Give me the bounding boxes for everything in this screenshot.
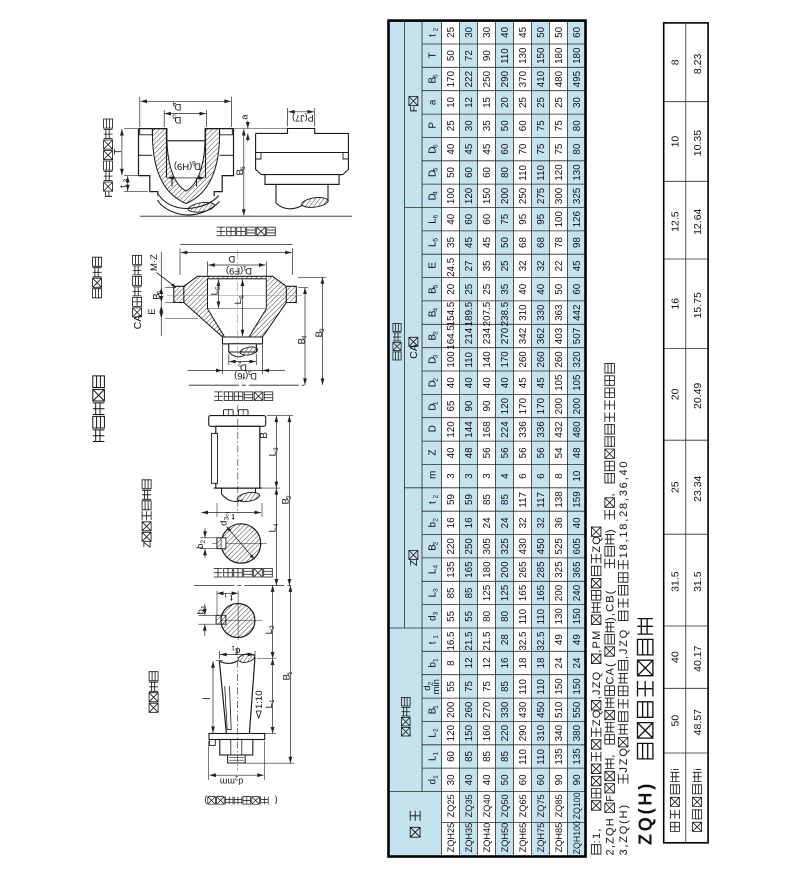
svg-text:18: 18 <box>536 657 547 668</box>
svg-text:,: , <box>605 492 617 496</box>
svg-text:,JZQ: ,JZQ <box>618 628 630 659</box>
svg-text:E: E <box>427 262 438 269</box>
svg-text:12: 12 <box>464 658 475 669</box>
svg-text:E: E <box>147 308 158 314</box>
svg-text:75: 75 <box>464 680 475 691</box>
svg-text:25: 25 <box>518 96 529 107</box>
svg-text:24: 24 <box>572 657 583 668</box>
svg-text:170: 170 <box>446 70 457 87</box>
svg-text:5: 5 <box>433 168 440 172</box>
svg-text:480: 480 <box>554 70 565 87</box>
svg-text:1: 1 <box>433 752 440 756</box>
svg-text:85: 85 <box>500 680 511 691</box>
svg-text:60: 60 <box>572 26 583 37</box>
svg-text:525: 525 <box>554 538 565 555</box>
svg-text:90: 90 <box>482 400 493 411</box>
svg-text:10: 10 <box>446 96 457 107</box>
svg-text:30: 30 <box>482 26 493 37</box>
svg-text:5: 5 <box>433 284 440 288</box>
svg-text:1: 1 <box>231 644 235 651</box>
svg-text:45: 45 <box>536 377 547 388</box>
svg-text:1: 1 <box>433 401 440 405</box>
svg-text:200: 200 <box>500 561 511 578</box>
svg-text:432: 432 <box>554 421 565 437</box>
svg-text:3: 3 <box>273 447 280 451</box>
svg-text:70: 70 <box>518 143 529 154</box>
svg-text:75: 75 <box>554 120 565 131</box>
svg-text:4: 4 <box>433 308 440 312</box>
svg-text:,JZQ: ,JZQ <box>591 671 603 700</box>
svg-text:330: 330 <box>536 304 547 321</box>
svg-text:40: 40 <box>670 651 682 663</box>
svg-text:40: 40 <box>446 143 457 154</box>
svg-text:2: 2 <box>433 728 440 732</box>
svg-text:,PM: ,PM <box>591 630 603 653</box>
svg-text:138: 138 <box>554 491 565 508</box>
svg-text:40: 40 <box>500 26 511 37</box>
svg-text:45: 45 <box>518 26 529 37</box>
svg-text:ZQH75: ZQH75 <box>536 823 546 853</box>
svg-text:40: 40 <box>446 447 457 458</box>
svg-text:340: 340 <box>554 724 565 741</box>
svg-text:D: D <box>427 425 438 432</box>
svg-text:ZQH40: ZQH40 <box>482 823 492 853</box>
svg-text:1: 1 <box>223 591 227 598</box>
svg-text:12: 12 <box>464 97 475 108</box>
svg-text:8: 8 <box>670 59 682 65</box>
svg-text:85: 85 <box>446 587 457 598</box>
svg-text:a: a <box>427 99 438 105</box>
svg-text:110: 110 <box>518 165 529 181</box>
svg-text:60: 60 <box>572 283 583 294</box>
svg-text:Z: Z <box>408 559 420 566</box>
svg-text:18,18,28,36,40: 18,18,28,36,40 <box>618 460 630 559</box>
svg-text:50: 50 <box>500 120 511 131</box>
svg-text:28: 28 <box>500 634 511 645</box>
svg-text:55: 55 <box>446 680 457 691</box>
svg-text:36: 36 <box>554 517 565 528</box>
svg-text:20: 20 <box>446 283 457 294</box>
svg-text:3: 3 <box>433 588 440 592</box>
svg-text:180: 180 <box>572 47 583 64</box>
svg-text:3: 3 <box>433 331 440 335</box>
svg-text:1: 1 <box>201 605 208 609</box>
svg-text:260: 260 <box>518 351 529 368</box>
svg-text:159: 159 <box>572 491 583 507</box>
svg-text:15: 15 <box>482 96 493 107</box>
svg-text:480: 480 <box>572 421 583 438</box>
svg-text:40: 40 <box>446 377 457 388</box>
svg-text:200: 200 <box>500 187 511 204</box>
svg-text:605: 605 <box>572 538 583 555</box>
svg-text:F: F <box>408 106 420 112</box>
svg-text:3: 3 <box>433 611 440 615</box>
svg-text:80: 80 <box>500 610 511 621</box>
svg-text:285: 285 <box>536 561 547 578</box>
svg-text:100: 100 <box>446 351 457 368</box>
svg-text:ZQH85: ZQH85 <box>554 823 564 853</box>
svg-text:238.5: 238.5 <box>500 301 511 326</box>
svg-text:24.5: 24.5 <box>446 257 457 277</box>
svg-text:200: 200 <box>554 584 565 601</box>
svg-text:ZQ40: ZQ40 <box>482 794 492 817</box>
svg-text:117: 117 <box>536 492 547 508</box>
svg-text:l: l <box>202 698 213 700</box>
svg-text:23.34: 23.34 <box>692 475 704 501</box>
svg-text:40: 40 <box>446 213 457 224</box>
svg-text:55: 55 <box>446 610 457 621</box>
svg-text:220: 220 <box>500 724 511 741</box>
svg-text:78: 78 <box>554 237 565 248</box>
svg-text:t: t <box>230 592 233 603</box>
svg-text:21.5: 21.5 <box>464 631 475 651</box>
svg-text:325: 325 <box>554 561 565 578</box>
svg-text:85: 85 <box>464 587 475 598</box>
svg-text:D: D <box>228 253 235 264</box>
svg-text:150: 150 <box>482 187 493 204</box>
svg-text:ZQ85: ZQ85 <box>554 794 564 817</box>
svg-text:16: 16 <box>500 657 511 668</box>
svg-text:16: 16 <box>670 298 682 310</box>
svg-text:50: 50 <box>446 166 457 177</box>
svg-text:220: 220 <box>446 538 457 555</box>
svg-text:2: 2 <box>433 27 440 31</box>
svg-text:85: 85 <box>500 494 511 505</box>
svg-text:t: t <box>427 641 438 644</box>
svg-text:430: 430 <box>518 701 529 718</box>
svg-text:P: P <box>427 122 438 129</box>
svg-text:T: T <box>113 149 124 155</box>
svg-text:189.5: 189.5 <box>464 301 475 326</box>
svg-text:6: 6 <box>433 74 440 78</box>
svg-text:45: 45 <box>572 260 583 271</box>
svg-text:10.35: 10.35 <box>692 130 704 156</box>
svg-text:3: 3 <box>319 328 326 332</box>
svg-text:21.5: 21.5 <box>482 631 493 651</box>
svg-text:ZQ100: ZQ100 <box>572 792 582 819</box>
svg-text:164.5: 164.5 <box>446 325 457 350</box>
svg-text:8: 8 <box>446 660 457 666</box>
svg-text:20.49: 20.49 <box>692 383 704 409</box>
svg-text:3: 3 <box>446 473 457 479</box>
svg-text:75: 75 <box>536 120 547 131</box>
svg-text:12.5: 12.5 <box>670 211 682 232</box>
svg-text:48: 48 <box>464 447 475 458</box>
svg-text:80: 80 <box>572 120 583 131</box>
svg-text:20: 20 <box>670 388 682 400</box>
svg-text:(f6): (f6) <box>234 370 248 381</box>
svg-text:30: 30 <box>464 26 475 37</box>
svg-text:85: 85 <box>482 750 493 761</box>
svg-text:60: 60 <box>500 143 511 154</box>
svg-text:45: 45 <box>482 143 493 154</box>
svg-text:31.5: 31.5 <box>692 571 704 592</box>
svg-text:F: F <box>605 794 617 802</box>
svg-text:31.5: 31.5 <box>670 571 682 592</box>
svg-text:330: 330 <box>500 701 511 718</box>
svg-text:35: 35 <box>482 120 493 131</box>
svg-text:170: 170 <box>500 351 511 368</box>
svg-text:30: 30 <box>572 96 583 107</box>
svg-text:120: 120 <box>500 397 511 414</box>
svg-text:68: 68 <box>536 237 547 248</box>
svg-text:222: 222 <box>464 71 475 87</box>
svg-text:224: 224 <box>500 421 511 438</box>
svg-text:403: 403 <box>554 327 565 344</box>
svg-text:430: 430 <box>518 538 529 555</box>
svg-text:150: 150 <box>536 47 547 64</box>
svg-text:25: 25 <box>554 96 565 107</box>
svg-text:ZQH50: ZQH50 <box>500 823 510 853</box>
svg-text:2: 2 <box>433 518 440 522</box>
svg-text:5: 5 <box>157 290 164 294</box>
svg-text:30: 30 <box>464 120 475 131</box>
svg-text:10: 10 <box>670 136 682 148</box>
svg-text:100: 100 <box>554 211 565 228</box>
svg-text:135: 135 <box>446 561 457 578</box>
svg-text:342: 342 <box>518 328 529 344</box>
svg-text:168: 168 <box>482 421 493 438</box>
svg-text:m: m <box>427 471 438 479</box>
svg-text:305: 305 <box>482 538 493 555</box>
svg-text:5: 5 <box>172 113 176 120</box>
svg-text:): ) <box>605 528 617 533</box>
svg-text:125: 125 <box>482 584 493 601</box>
svg-text:Z: Z <box>141 541 153 548</box>
svg-text:40: 40 <box>464 774 475 785</box>
svg-text:180: 180 <box>554 47 565 64</box>
svg-text:3: 3 <box>482 473 493 479</box>
svg-text:140: 140 <box>482 351 493 368</box>
svg-text:240: 240 <box>572 584 583 601</box>
svg-text:60: 60 <box>536 774 547 785</box>
svg-text:3,ZQ(H): 3,ZQ(H) <box>618 803 630 855</box>
svg-text:56: 56 <box>482 447 493 458</box>
svg-text:260: 260 <box>536 351 547 368</box>
svg-text:60: 60 <box>482 213 493 224</box>
svg-text:25: 25 <box>500 260 511 271</box>
svg-text:ZQ65: ZQ65 <box>518 794 528 817</box>
svg-text:35: 35 <box>446 237 457 248</box>
svg-text:325: 325 <box>500 538 511 555</box>
svg-text:(: ( <box>275 795 278 805</box>
svg-text:6: 6 <box>240 166 247 170</box>
svg-text:1: 1 <box>433 635 440 639</box>
svg-text:ZQH35: ZQH35 <box>464 823 474 853</box>
svg-text:110: 110 <box>500 48 511 64</box>
svg-text:75: 75 <box>536 143 547 154</box>
svg-text:310: 310 <box>518 304 529 321</box>
svg-text:3: 3 <box>433 354 440 358</box>
svg-text:45: 45 <box>518 377 529 388</box>
svg-text:144: 144 <box>464 421 475 438</box>
svg-text:410: 410 <box>536 70 547 87</box>
svg-text:1: 1 <box>269 699 276 703</box>
svg-text:15.75: 15.75 <box>692 292 704 318</box>
svg-text:2: 2 <box>238 360 242 367</box>
svg-text:ZQ: ZQ <box>591 708 603 726</box>
svg-text:250: 250 <box>518 187 529 204</box>
svg-text:365: 365 <box>572 561 583 578</box>
svg-text:(H9): (H9) <box>174 160 192 171</box>
svg-text:1: 1 <box>433 775 440 779</box>
svg-text:32: 32 <box>518 260 529 271</box>
svg-text:50: 50 <box>670 715 682 727</box>
svg-text:550: 550 <box>572 701 583 718</box>
svg-text:35: 35 <box>482 260 493 271</box>
svg-text:48.57: 48.57 <box>692 709 704 735</box>
svg-text:M·Z: M·Z <box>149 254 160 271</box>
svg-text:8.23: 8.23 <box>692 54 704 75</box>
svg-text:150: 150 <box>554 678 565 695</box>
svg-text:B: B <box>259 432 270 439</box>
svg-text:80: 80 <box>500 166 511 177</box>
svg-text::1,: :1, <box>591 827 603 843</box>
svg-text:150: 150 <box>572 608 583 625</box>
svg-text:380: 380 <box>572 724 583 741</box>
svg-text:80: 80 <box>572 143 583 154</box>
svg-text:2: 2 <box>433 541 440 545</box>
svg-text:250: 250 <box>482 70 493 87</box>
svg-text:105: 105 <box>572 374 583 391</box>
svg-text:40: 40 <box>536 283 547 294</box>
svg-text:32.5: 32.5 <box>536 631 547 651</box>
svg-text:32.5: 32.5 <box>518 631 529 651</box>
svg-text:120: 120 <box>554 164 565 181</box>
svg-text:40: 40 <box>482 377 493 388</box>
svg-text:min: min <box>431 679 442 694</box>
svg-text:32: 32 <box>536 517 547 528</box>
svg-text:2: 2 <box>200 540 207 544</box>
svg-text:362: 362 <box>536 328 547 344</box>
svg-text:): ) <box>204 795 207 805</box>
svg-text:270: 270 <box>500 327 511 344</box>
svg-text:275: 275 <box>536 187 547 204</box>
svg-text:ZQH65: ZQH65 <box>518 823 528 853</box>
svg-text:100: 100 <box>446 187 457 204</box>
svg-text:336: 336 <box>536 421 547 438</box>
svg-text:60: 60 <box>518 774 529 785</box>
svg-text:250: 250 <box>464 538 475 555</box>
svg-text:495: 495 <box>572 70 583 87</box>
svg-text:56: 56 <box>500 447 511 458</box>
svg-text:6: 6 <box>518 473 529 479</box>
svg-text:336: 336 <box>518 421 529 438</box>
svg-text:59: 59 <box>464 494 475 505</box>
svg-text:117: 117 <box>518 492 529 508</box>
svg-text:90: 90 <box>482 50 493 61</box>
svg-text:450: 450 <box>536 701 547 718</box>
svg-text:ZQ35: ZQ35 <box>464 794 474 817</box>
svg-text:18: 18 <box>518 657 529 668</box>
svg-text:110: 110 <box>536 165 547 181</box>
svg-text:165: 165 <box>464 561 475 578</box>
svg-text:442: 442 <box>572 305 583 321</box>
svg-text:45: 45 <box>464 143 475 154</box>
svg-text:50: 50 <box>554 26 565 37</box>
svg-text:(F9): (F9) <box>226 265 243 276</box>
svg-text:10: 10 <box>572 470 583 481</box>
svg-text:265: 265 <box>518 561 529 578</box>
svg-text:16: 16 <box>464 517 475 528</box>
svg-text:54: 54 <box>554 447 565 458</box>
svg-text:165: 165 <box>518 584 529 601</box>
svg-text:20: 20 <box>500 96 511 107</box>
svg-text:32: 32 <box>536 260 547 271</box>
svg-text:110: 110 <box>536 678 547 694</box>
svg-text:t: t <box>118 185 129 188</box>
svg-text:290: 290 <box>518 724 529 741</box>
svg-text:90: 90 <box>464 400 475 411</box>
svg-text:85: 85 <box>500 750 511 761</box>
svg-text:50: 50 <box>554 283 565 294</box>
svg-text:507: 507 <box>572 328 583 344</box>
svg-text:16: 16 <box>446 517 457 528</box>
svg-text:110: 110 <box>518 608 529 624</box>
svg-text:2,ZQH: 2,ZQH <box>605 817 617 855</box>
svg-text:40.17: 40.17 <box>692 645 704 671</box>
svg-text:120: 120 <box>464 187 475 204</box>
svg-text:5: 5 <box>433 238 440 242</box>
svg-text:P(J7): P(J7) <box>292 113 314 123</box>
svg-text:F: F <box>103 191 115 197</box>
svg-text:110: 110 <box>518 749 529 765</box>
svg-text:30: 30 <box>446 774 457 785</box>
svg-text:75: 75 <box>500 213 511 224</box>
svg-text:CA(: CA( <box>605 662 617 685</box>
svg-text:234: 234 <box>482 327 493 344</box>
svg-text:55: 55 <box>464 610 475 621</box>
svg-text:3: 3 <box>464 473 475 479</box>
svg-text:98: 98 <box>572 237 583 248</box>
svg-text:ZQ25: ZQ25 <box>446 794 456 817</box>
svg-text:35: 35 <box>500 283 511 294</box>
svg-text:130: 130 <box>572 164 583 181</box>
svg-text:150: 150 <box>464 724 475 741</box>
svg-text:4: 4 <box>433 191 440 195</box>
svg-text:75: 75 <box>482 680 493 691</box>
svg-text:72: 72 <box>464 50 475 61</box>
svg-text:25: 25 <box>482 283 493 294</box>
svg-text:200: 200 <box>446 701 457 718</box>
svg-text:85: 85 <box>464 750 475 761</box>
svg-text:40: 40 <box>500 377 511 388</box>
svg-text:200: 200 <box>572 397 583 414</box>
svg-text:Z: Z <box>427 450 438 456</box>
svg-text:6: 6 <box>239 295 246 299</box>
svg-text:260: 260 <box>554 351 565 368</box>
svg-text:t: t <box>231 511 234 522</box>
svg-text:50: 50 <box>500 237 511 248</box>
svg-text:25: 25 <box>536 96 547 107</box>
svg-text:68: 68 <box>518 237 529 248</box>
svg-text:59: 59 <box>446 494 457 505</box>
svg-text:49: 49 <box>554 634 565 645</box>
svg-text:12.64: 12.64 <box>692 208 704 234</box>
svg-text:ZQ(H): ZQ(H) <box>636 781 656 845</box>
svg-text:4: 4 <box>500 473 511 479</box>
svg-text:180: 180 <box>482 561 493 578</box>
svg-text:90: 90 <box>554 774 565 785</box>
svg-text:49: 49 <box>572 634 583 645</box>
svg-text:260: 260 <box>464 701 475 718</box>
svg-text:50: 50 <box>500 774 511 785</box>
svg-text:t: t <box>427 34 438 37</box>
svg-text:),CB(: ),CB( <box>605 589 617 621</box>
svg-text:12: 12 <box>482 658 493 669</box>
svg-text:2: 2 <box>286 495 293 499</box>
svg-text:363: 363 <box>554 304 565 321</box>
